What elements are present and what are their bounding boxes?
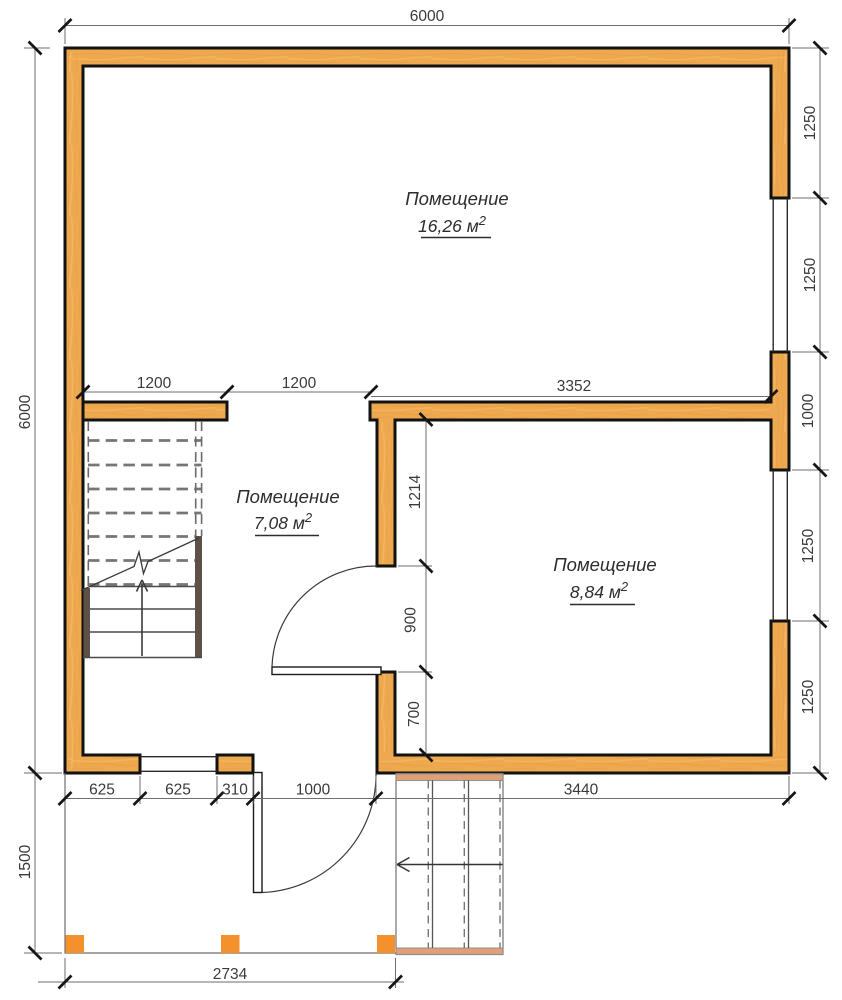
svg-text:1000: 1000: [296, 782, 331, 799]
svg-text:1250: 1250: [802, 257, 819, 292]
svg-text:1200: 1200: [137, 375, 172, 392]
svg-text:1214: 1214: [407, 474, 424, 509]
svg-text:1250: 1250: [800, 528, 817, 563]
svg-text:1500: 1500: [17, 844, 34, 879]
svg-text:7,08 м2: 7,08 м2: [254, 510, 313, 533]
svg-text:8,84 м2: 8,84 м2: [570, 579, 629, 602]
svg-text:625: 625: [89, 782, 115, 799]
svg-text:1200: 1200: [282, 375, 317, 392]
svg-text:Помещение: Помещение: [236, 486, 339, 507]
svg-text:700: 700: [406, 701, 423, 727]
svg-text:3440: 3440: [564, 782, 599, 799]
svg-text:16,26 м2: 16,26 м2: [418, 213, 487, 236]
svg-text:1250: 1250: [802, 105, 819, 140]
svg-text:1250: 1250: [800, 679, 817, 714]
svg-text:900: 900: [403, 607, 420, 633]
svg-text:6000: 6000: [17, 394, 34, 429]
svg-text:3352: 3352: [557, 378, 591, 395]
svg-text:1000: 1000: [800, 393, 817, 428]
svg-text:2734: 2734: [213, 966, 248, 983]
svg-text:Помещение: Помещение: [553, 554, 656, 575]
svg-text:625: 625: [165, 782, 191, 799]
svg-text:310: 310: [222, 782, 248, 799]
svg-text:Помещение: Помещение: [405, 188, 508, 209]
svg-text:6000: 6000: [410, 8, 445, 25]
